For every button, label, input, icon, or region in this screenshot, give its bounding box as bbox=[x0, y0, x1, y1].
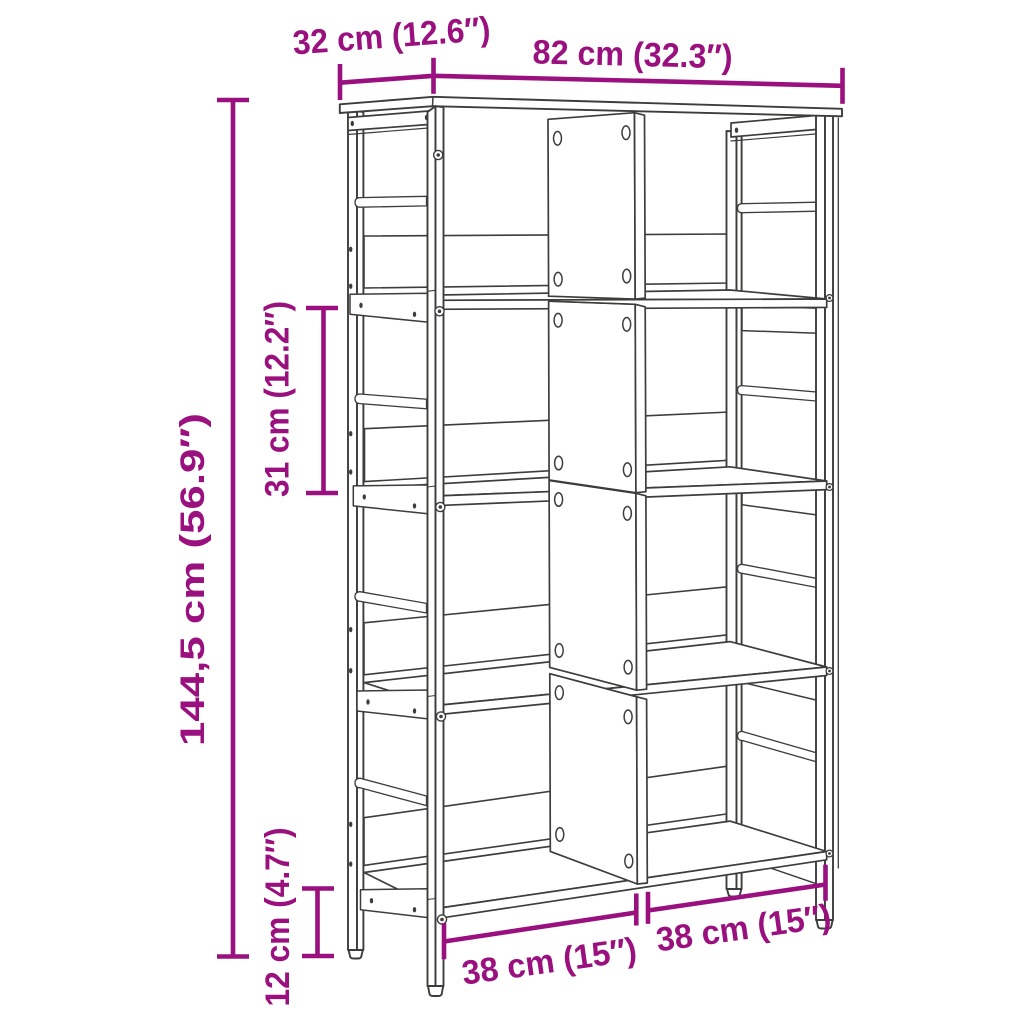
svg-text:144,5 cm (56.9″): 144,5 cm (56.9″) bbox=[174, 413, 212, 746]
svg-text:82 cm (32.3″): 82 cm (32.3″) bbox=[532, 33, 733, 76]
svg-text:12 cm (4.7″): 12 cm (4.7″) bbox=[259, 828, 297, 1007]
svg-text:31 cm (12.2″): 31 cm (12.2″) bbox=[259, 301, 297, 497]
